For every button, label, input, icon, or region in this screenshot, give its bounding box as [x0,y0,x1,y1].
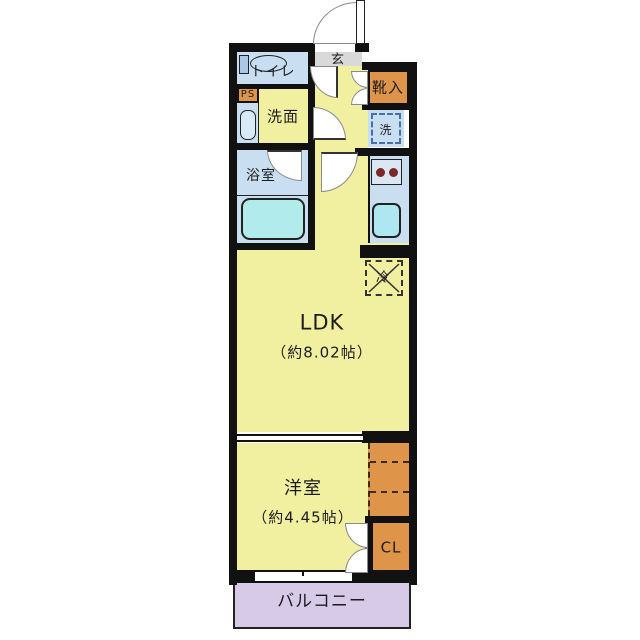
western-room-size-label: （約4.45帖） [252,511,353,526]
wall-right [409,62,417,585]
ldk-label: LDK [300,313,345,334]
stove-burner-left-icon [376,168,385,177]
bathroom-label: 浴室 [246,169,276,183]
refrigerator-label: 冷 [376,272,390,285]
kitchen-sink-icon [372,203,401,238]
ldk-size-label: （約8.02帖） [271,346,372,361]
entrance-door-leaf [356,0,365,44]
closet-strip [368,443,409,516]
balcony-label: バルコニー [277,594,367,611]
closet-strip-dash-line-2 [370,491,409,493]
closet-strip-dash-line-1 [370,461,409,463]
washer-label: 洗 [379,124,392,136]
wall-kitchen-bottom [360,245,417,258]
wall-washroom-bath [229,143,315,150]
toilet-icon [239,55,249,74]
wall-kitchen-top [355,148,409,156]
closet-label: CL [381,541,402,556]
window-center-tick [302,570,304,576]
toilet-label: トイレ [251,65,296,79]
wall-entrance-right [355,43,369,52]
wall-top-left [229,43,315,52]
stove-icon [371,159,402,185]
floor-plan: 玄 トイレ PS 洗面 浴室 靴入 洗 冷 LDK （約8.02帖） 洋室 （約… [0,0,640,640]
bathtub-edge-line [237,195,308,196]
pipe-space-label: PS [241,90,255,100]
wall-shoe-bottom [362,104,409,110]
entrance-label: 玄 [331,54,345,67]
wall-divider-stub [362,431,409,443]
bathtub-icon [241,198,305,240]
entrance-door-icon [313,2,357,44]
shoe-cabinet-label: 靴入 [372,81,404,96]
washroom-label: 洗面 [267,110,299,125]
sliding-partition-icon [237,434,363,442]
western-room-label: 洋室 [284,480,322,498]
wall-bath-bottom [229,243,315,250]
wall-left [229,43,237,585]
washbasin-icon [240,110,256,140]
stove-burner-right-icon [389,168,398,177]
